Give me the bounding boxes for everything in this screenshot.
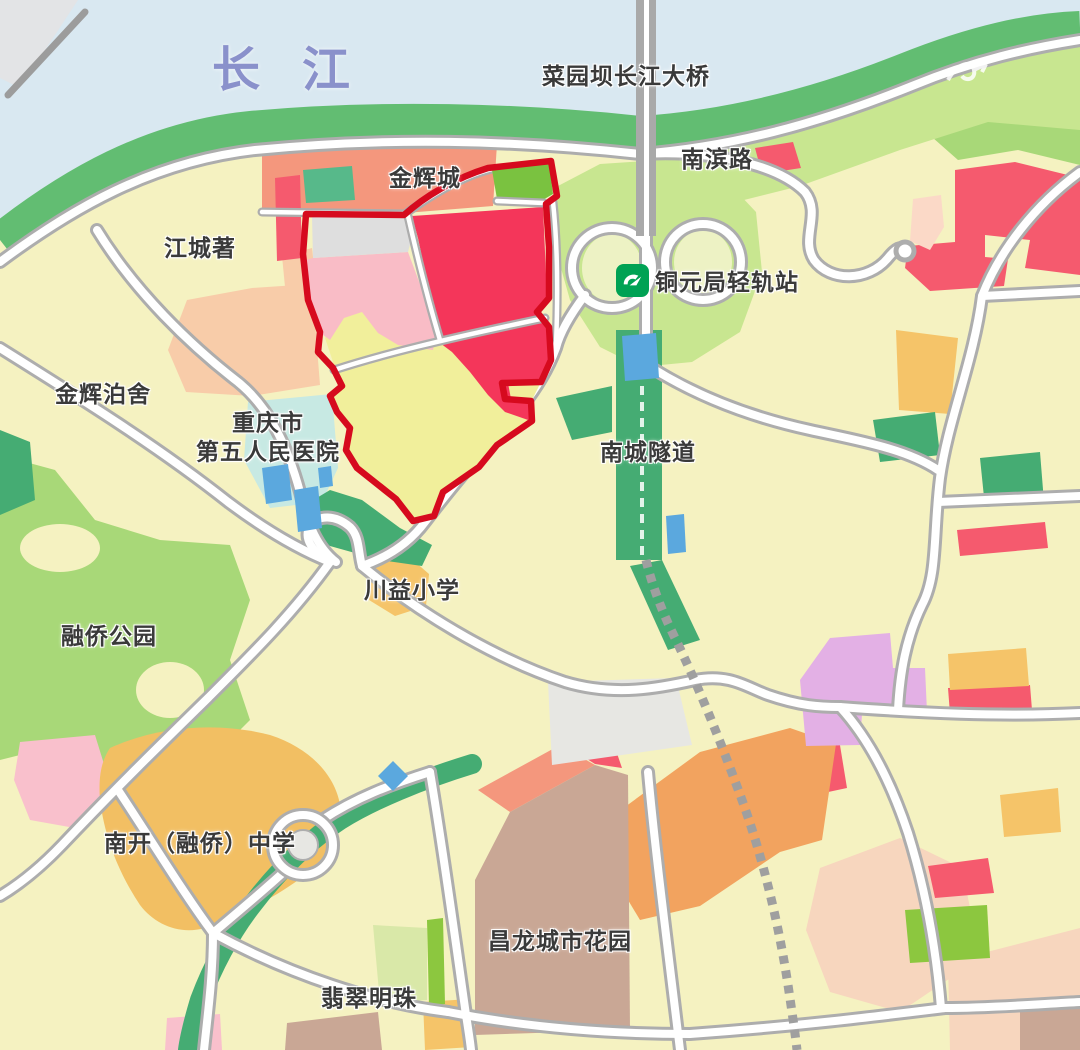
hospital-label: 重庆市 第五人民医院 (196, 409, 340, 468)
jiangchengzhu-label: 江城著 (164, 229, 236, 263)
tunnel-label: 南城隧道 (600, 433, 696, 467)
caiyuanba-bridge-road (636, 0, 656, 236)
teal-patch (303, 166, 355, 203)
feicui-pearl-label: 翡翠明珠 (321, 979, 417, 1013)
hospital-label-line2: 第五人民医院 (196, 438, 340, 467)
hospital-label-line1: 重庆市 (196, 409, 340, 438)
changlong-garden-label: 昌龙城市花园 (488, 922, 632, 956)
bridge-label: 菜园坝长江大桥 (542, 57, 710, 91)
jinhui-boshe-label: 金辉泊舍 (55, 375, 151, 409)
hospital-building (262, 464, 292, 504)
river-name-label: 长江 (212, 30, 392, 100)
metro-logo-icon (616, 264, 649, 297)
metro-station-building (622, 333, 659, 381)
primary-school-label: 川益小学 (364, 571, 460, 605)
middle-school-label: 南开（融侨）中学 (104, 824, 296, 858)
nanbin-road-label: 南滨路 (681, 140, 753, 174)
hospital-building (294, 486, 322, 532)
jinhui-city-label: 金辉城 (389, 159, 461, 193)
park-label: 融侨公园 (61, 617, 157, 651)
small-building (666, 514, 686, 554)
parcel-gray-zone (312, 216, 413, 258)
metro-station-label: 铜元局轻轨站 (616, 263, 799, 297)
map-image (0, 0, 1080, 1050)
map-canvas[interactable]: 长江 菜园坝长江大桥 南滨路 金辉城 江城著 铜元局轻轨站 金辉泊舍 重庆市 第… (0, 0, 1080, 1050)
metro-station-text: 铜元局轻轨站 (655, 263, 799, 297)
cul-de-sac (896, 242, 914, 260)
hospital-building (318, 466, 333, 488)
